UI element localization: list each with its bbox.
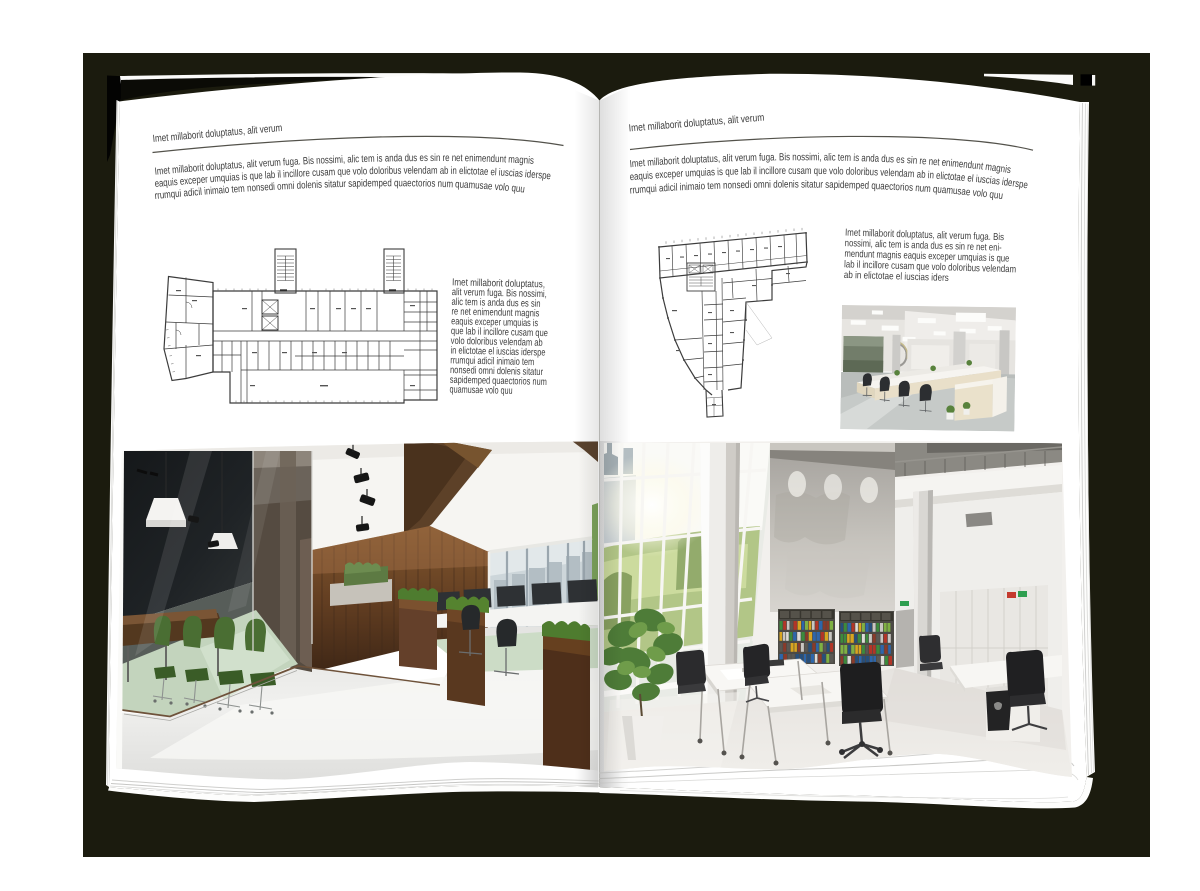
svg-text:quamusae volo quu: quamusae volo quu <box>449 384 512 396</box>
